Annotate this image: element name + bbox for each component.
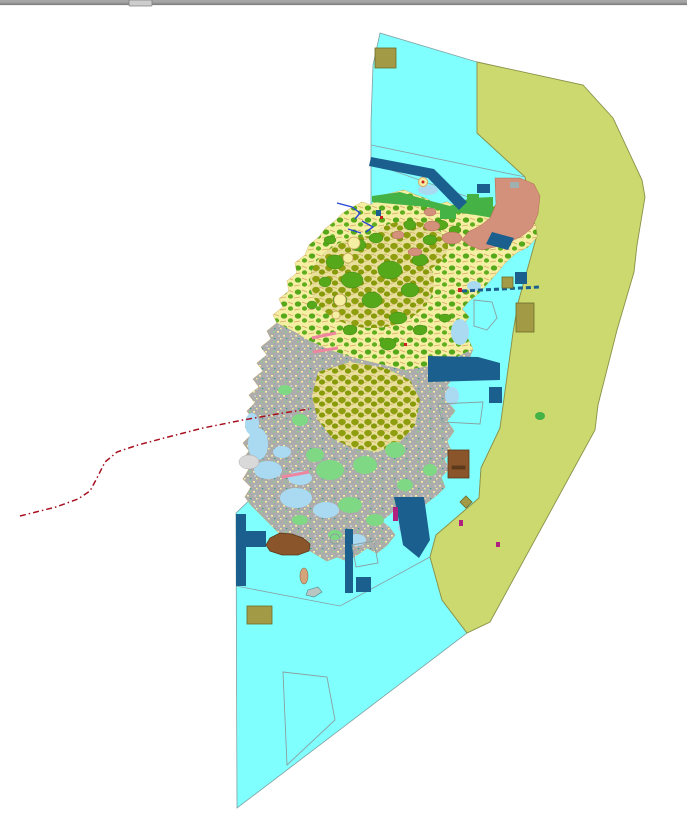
forest-blob <box>341 272 363 288</box>
buoy-marker-dot <box>422 181 425 184</box>
bay <box>280 488 312 508</box>
grass-patch <box>292 414 308 426</box>
grass-patch <box>385 442 405 458</box>
forest-blob <box>369 233 383 243</box>
parcel-islet <box>348 237 360 249</box>
grass-patch <box>306 448 324 462</box>
olive-square-top <box>375 48 396 68</box>
grass-patch <box>423 464 437 476</box>
magenta-marker <box>393 507 398 521</box>
olive-square-east-small <box>502 277 513 288</box>
red-marker <box>380 216 383 219</box>
forest-blob <box>362 292 382 308</box>
top-bar-highlight <box>0 0 687 2</box>
forest-blob <box>319 277 331 287</box>
forest-blob <box>439 314 451 322</box>
salmon-patch <box>424 221 440 231</box>
forest-blob <box>401 283 419 297</box>
forest-blob <box>423 235 437 245</box>
grass-patch <box>316 460 344 480</box>
olive-rect-east <box>516 303 534 332</box>
grass-patch <box>397 479 413 491</box>
navy-parcel <box>477 184 490 193</box>
gray-mark-in-salmon <box>510 182 519 188</box>
east-brown-site <box>448 450 469 478</box>
salmon-patch <box>424 208 436 216</box>
forest-blob <box>326 255 344 269</box>
red-marker <box>404 343 407 346</box>
navy-square-east <box>515 272 527 284</box>
west-pier-arm <box>246 531 266 547</box>
bay <box>245 413 259 435</box>
red-marker <box>458 288 462 292</box>
top-bar-body <box>0 2 687 4</box>
grass-patch <box>366 514 384 526</box>
green-parcel <box>440 206 456 219</box>
magenta-marker <box>459 520 463 526</box>
forest-blob <box>378 261 402 279</box>
bay <box>313 502 339 518</box>
olive-square-southwest <box>247 606 272 624</box>
map-window <box>0 0 687 821</box>
magenta-marker <box>496 542 500 547</box>
green-parcel <box>467 194 479 205</box>
grass-patch <box>353 456 377 474</box>
forest-blob <box>404 220 416 230</box>
forest-blob <box>389 312 407 324</box>
parcel-islet <box>332 311 340 319</box>
forest-blob <box>380 338 396 350</box>
window-top-bar <box>0 0 687 6</box>
salmon-patch <box>442 232 462 244</box>
parcel-islet <box>343 253 353 263</box>
forest-blob <box>324 236 336 244</box>
south-pier-vertical <box>345 529 353 593</box>
forest-blob <box>343 325 357 335</box>
islet-tan <box>300 568 308 584</box>
navy-square-east-2 <box>489 387 502 403</box>
top-bar-grip-handle[interactable] <box>129 0 152 6</box>
grass-patch <box>292 515 308 525</box>
green-parcel <box>535 412 545 420</box>
grass-patch <box>278 385 292 395</box>
top-bar-shadow <box>0 4 687 5</box>
bay <box>451 319 469 345</box>
map-canvas[interactable] <box>0 0 687 821</box>
south-square <box>356 577 371 592</box>
bay <box>445 387 459 405</box>
salmon-patch <box>392 231 404 239</box>
parcel-islet <box>334 294 346 306</box>
east-brown-site-line <box>452 466 465 469</box>
salmon-patch <box>408 248 422 256</box>
navy-dot-coast <box>376 210 381 216</box>
forest-blob <box>307 301 317 309</box>
bay <box>273 446 291 458</box>
forest-blob <box>413 325 427 335</box>
grass-patch <box>338 497 362 513</box>
shoal-west <box>239 455 259 469</box>
west-pier-vertical <box>236 514 246 586</box>
